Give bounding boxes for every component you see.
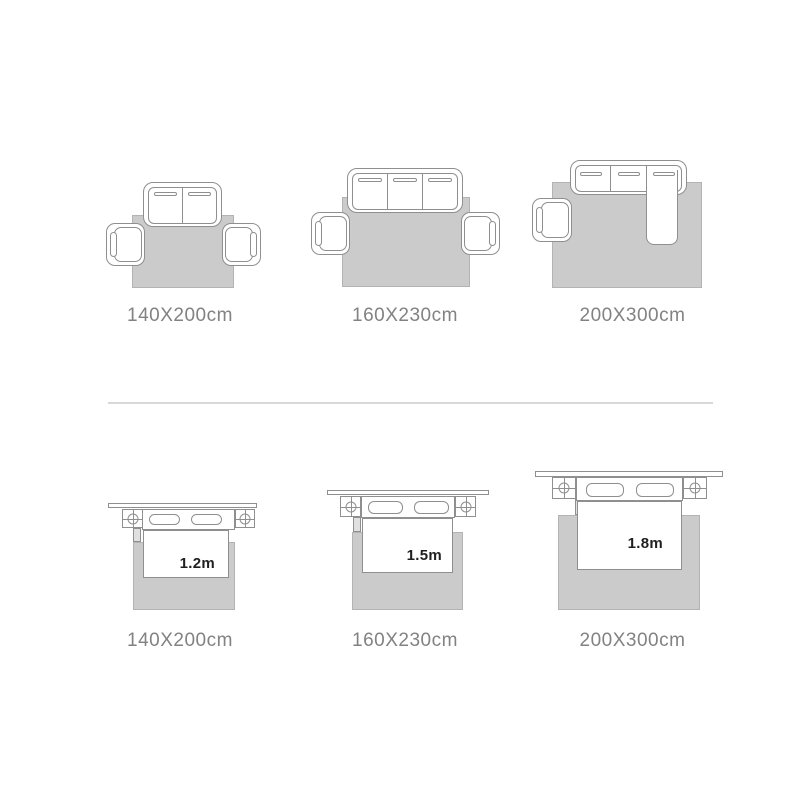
size-label: 200X300cm (525, 630, 740, 652)
armchair-seat (114, 227, 142, 262)
armchair-right (461, 212, 500, 255)
lamp-icon (345, 501, 356, 512)
armchair-seat (464, 216, 492, 251)
cushion-stitch (154, 192, 176, 196)
size-label: 140X200cm (90, 630, 270, 652)
lamp-icon (460, 501, 471, 512)
nightstand-left (122, 509, 143, 528)
bed-head (361, 496, 455, 518)
chaise-lounge (646, 170, 678, 245)
bed: 1.8m (577, 501, 682, 570)
lamp-icon (127, 513, 138, 524)
headboard (327, 490, 489, 495)
cushion-stitch (358, 178, 381, 182)
cushion-stitch (428, 178, 451, 182)
bedside-leg (353, 517, 361, 532)
nightstand-right (235, 509, 255, 528)
armchair-left (106, 223, 145, 266)
lamp-icon (240, 513, 251, 524)
bed-width-label: 1.5m (407, 547, 442, 564)
size-label: 160X230cm (300, 305, 510, 327)
bed-width-label: 1.8m (628, 535, 663, 552)
sofa-cushion (423, 174, 457, 209)
armchair-seat (225, 227, 253, 262)
armchair-cushion (489, 221, 496, 246)
nightstand-left (552, 477, 576, 499)
cushion-stitch (188, 192, 210, 196)
headboard (108, 503, 257, 508)
armchair-seat (541, 202, 569, 238)
bed: 1.2m (143, 530, 229, 578)
nightstand-right (455, 496, 476, 517)
rug (552, 182, 702, 288)
bed-width-label: 1.2m (180, 555, 215, 572)
armchair-left (532, 198, 572, 242)
armchair-left (311, 212, 350, 255)
sofa-cushion (576, 166, 611, 191)
sofa-layout-140x200: 140X200cm (90, 150, 270, 350)
armchair-right (222, 223, 261, 266)
section-divider (108, 402, 713, 404)
pillow (586, 483, 624, 497)
lamp-icon (559, 483, 570, 494)
armchair-cushion (315, 221, 322, 246)
size-label: 200X300cm (525, 305, 740, 327)
bed-head (142, 509, 235, 530)
sofa-seat (148, 187, 217, 224)
three-seat-sofa (347, 168, 463, 213)
bed-layout-140x200: 1.2m 140X200cm (90, 470, 270, 670)
sofa-cushion (149, 188, 183, 223)
bedside-leg (133, 528, 141, 542)
cushion-stitch (580, 172, 602, 176)
lamp-icon (690, 483, 701, 494)
rug-size-guide: 140X200cm 160X230cm (0, 0, 800, 800)
bed-layout-160x230: 1.5m 160X230cm (300, 460, 510, 670)
sofa-layout-200x300: 200X300cm (525, 150, 740, 350)
pillow (368, 501, 403, 514)
armchair-cushion (110, 232, 117, 257)
sofa-seat (352, 173, 458, 210)
armchair-cushion (536, 207, 543, 233)
size-label: 160X230cm (300, 630, 510, 652)
cushion-stitch (393, 178, 416, 182)
cushion-stitch (618, 172, 640, 176)
armchair-cushion (250, 232, 257, 257)
pillow (414, 501, 449, 514)
bed-layout-200x300: 1.8m 200X300cm (525, 440, 740, 670)
two-seat-sofa (143, 182, 222, 227)
pillow (191, 514, 222, 525)
bed: 1.5m (362, 518, 453, 573)
sofa-cushion (353, 174, 388, 209)
armchair-seat (319, 216, 347, 251)
bed-head (576, 477, 683, 501)
nightstand-right (683, 477, 707, 499)
size-label: 140X200cm (90, 305, 270, 327)
sofa-cushion (388, 174, 423, 209)
pillow (636, 483, 674, 497)
sofa-layout-160x230: 160X230cm (300, 150, 510, 350)
sofa-cushion (611, 166, 646, 191)
pillow (149, 514, 180, 525)
sofa-cushion (183, 188, 216, 223)
nightstand-left (340, 496, 361, 517)
cushion-stitch (653, 172, 675, 176)
